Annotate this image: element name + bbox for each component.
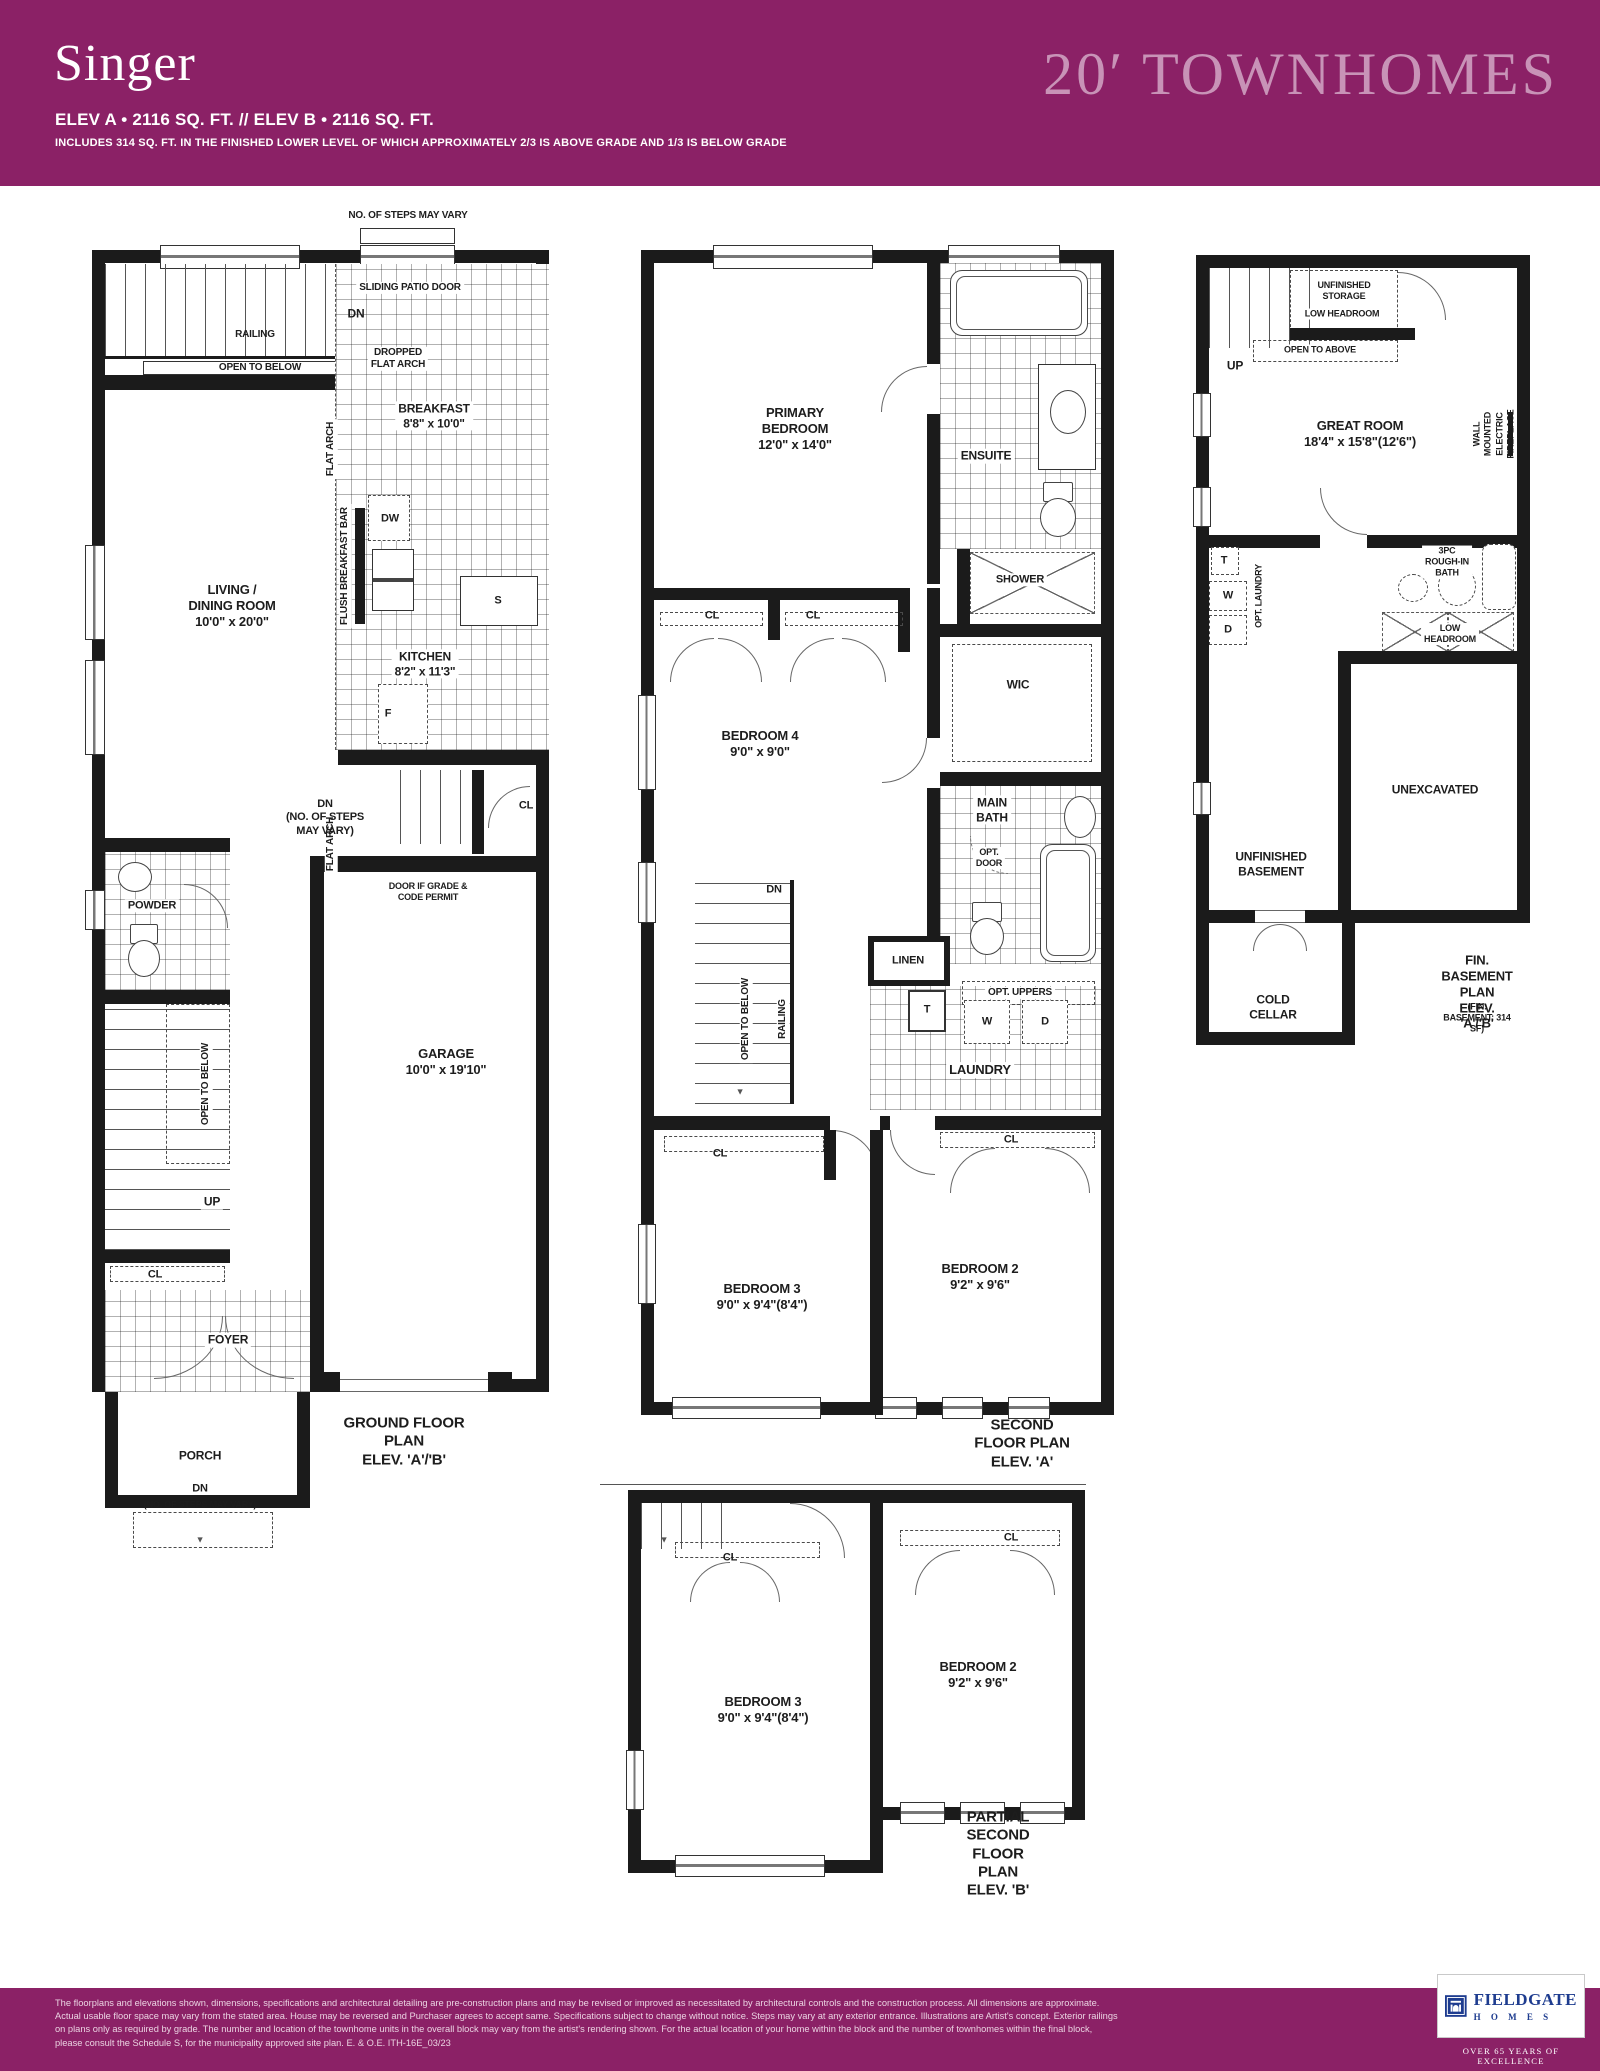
- window: [900, 1802, 945, 1824]
- wall: [768, 588, 780, 640]
- label-railing: RAILING: [235, 329, 275, 341]
- label-fridge: F: [382, 707, 395, 720]
- wall: [880, 1116, 890, 1130]
- disclaimer-text: The floorplans and elevations shown, dim…: [55, 1997, 1118, 2050]
- page-title: Singer: [54, 34, 196, 93]
- label-opt-uppers: OPT. UPPERS: [985, 987, 1055, 999]
- logo-tagline: OVER 65 YEARS OF EXCELLENCE: [1437, 2046, 1585, 2066]
- label-kitchen: KITCHEN 8'2" x 11'3": [392, 649, 459, 678]
- bathtub-fixture: [1040, 844, 1096, 962]
- label-primary-bedroom: PRIMARY BEDROOM 12'0" x 14'0": [758, 405, 832, 453]
- label-open-to-below-stair: OPEN TO BELOW: [200, 1040, 213, 1128]
- window: [638, 862, 656, 923]
- label-unexcavated: UNEXCAVATED: [1392, 783, 1478, 798]
- wall: [105, 838, 230, 852]
- wall: [927, 263, 940, 364]
- logo-homes-text: H O M E S: [1474, 2012, 1577, 2022]
- label-breakfast: BREAKFAST 8'8" x 10'0": [395, 401, 473, 430]
- wall: [472, 770, 484, 854]
- wall: [1338, 651, 1351, 923]
- wall: [1338, 651, 1530, 664]
- label-cl-left: CL: [723, 1551, 737, 1564]
- label-up: UP: [201, 1195, 223, 1210]
- wall: [957, 549, 970, 624]
- stairs: [400, 770, 478, 844]
- label-dn-mid: DN (NO. OF STEPS MAY VARY): [286, 798, 364, 838]
- label-living-dining: LIVING / DINING ROOM 10'0" x 20'0": [188, 582, 275, 630]
- ground-floor-plan: NO. OF STEPS MAY VARY SLIDING PATIO DOOR…: [88, 244, 564, 1584]
- closet-outline: [900, 1530, 1060, 1546]
- label-bedroom2: BEDROOM 2 9'2" x 9'6": [942, 1261, 1019, 1293]
- closet-outline: [664, 1136, 824, 1152]
- label-d: D: [1224, 623, 1232, 636]
- label-laundry: LAUNDRY: [946, 1062, 1014, 1078]
- basement-plan-caption-note: (FIN. BASEMENT: 314 SF): [1443, 1002, 1511, 1035]
- label-cl-bottom-left: CL: [713, 1147, 727, 1160]
- sink-fixture: [1050, 390, 1086, 434]
- wall: [488, 1372, 512, 1392]
- label-cl-left: CL: [705, 609, 719, 622]
- label-great-room: GREAT ROOM 18'4" x 15'8"(12'6"): [1304, 418, 1416, 450]
- label-cold-cellar: COLD CELLAR: [1249, 992, 1296, 1021]
- label-sink: S: [494, 594, 501, 607]
- window: [626, 1750, 644, 1810]
- label-bedroom3: BEDROOM 3 9'0" x 9'4"(8'4"): [718, 1694, 809, 1726]
- label-sliding-patio-door: SLIDING PATIO DOOR: [356, 282, 464, 294]
- label-t: T: [924, 1003, 931, 1016]
- wall: [105, 1250, 230, 1263]
- second-plan-caption: SECOND FLOOR PLAN ELEV. 'A': [973, 1417, 1071, 1472]
- label-main-bath: MAIN BATH: [973, 795, 1011, 824]
- tub-rough-in: [1482, 544, 1516, 610]
- railing-line: [790, 880, 794, 1104]
- closet-outline: [110, 1266, 225, 1282]
- wall: [654, 1116, 830, 1130]
- series-brand: 20′ TOWNHOMES: [1043, 40, 1558, 109]
- wall: [870, 1503, 883, 1860]
- window: [85, 660, 105, 755]
- label-opt-door: OPT. DOOR: [973, 847, 1005, 869]
- wall: [1290, 328, 1415, 340]
- label-door-if-grade: DOOR IF GRADE & CODE PERMIT: [389, 881, 468, 903]
- label-t: T: [1221, 554, 1228, 567]
- label-railing: RAILING: [777, 996, 790, 1042]
- wall: [940, 624, 1101, 637]
- open-to-below-outline: [166, 1004, 230, 1164]
- wall: [338, 750, 549, 765]
- window: [1193, 487, 1211, 527]
- partial-plan-caption: PARTIAL SECOND FLOOR PLAN ELEV. 'B': [952, 1808, 1044, 1899]
- window: [675, 1855, 825, 1877]
- label-dn: DN: [766, 883, 782, 896]
- label-open-to-below: OPEN TO BELOW: [219, 362, 301, 374]
- wall: [870, 1130, 883, 1415]
- section-line: [600, 1484, 1086, 1485]
- stairs-arrow-icon: ▼: [736, 1087, 745, 1098]
- wall: [310, 856, 324, 1392]
- fieldgate-logo: FIELDGATE H O M E S: [1437, 1974, 1585, 2038]
- garage-door-opening: [328, 1379, 498, 1392]
- basement-plan: UP UNFINISHED STORAGE LOW HEADROOM OPEN …: [1195, 244, 1545, 1074]
- label-dw: DW: [378, 512, 402, 525]
- label-linen: LINEN: [889, 954, 927, 967]
- railing-line: [105, 356, 373, 359]
- label-dn-bottom: DN: [192, 1482, 208, 1495]
- label-dn-top: DN: [348, 307, 365, 322]
- fieldgate-logo-icon: [1445, 1983, 1467, 2029]
- closet-outline: [785, 612, 903, 626]
- window: [672, 1397, 821, 1419]
- label-cl-lower: CL: [148, 1268, 162, 1281]
- label-ensuite: ENSUITE: [958, 449, 1015, 464]
- label-foyer: FOYER: [205, 1333, 251, 1348]
- label-dropped-flat-arch: DROPPED FLAT ARCH: [368, 347, 428, 371]
- second-floor-plan: PRIMARY BEDROOM 12'0" x 14'0" ENSUITE SH…: [640, 244, 1120, 1524]
- wic-outline: [952, 644, 1092, 762]
- label-wic: WIC: [1007, 678, 1030, 693]
- window: [85, 545, 105, 640]
- deck-landing: [360, 228, 455, 244]
- window: [1193, 782, 1211, 815]
- toilet-fixture: [126, 924, 160, 976]
- stairs-arrow-icon: ▼: [660, 1535, 669, 1546]
- label-d: D: [1038, 1015, 1052, 1028]
- label-w: W: [1223, 589, 1233, 602]
- grade-note: INCLUDES 314 SQ. FT. IN THE FINISHED LOW…: [55, 137, 787, 149]
- wall: [935, 1116, 1101, 1130]
- toilet-fixture: [968, 902, 1004, 954]
- label-garage: GARAGE 10'0" x 19'10": [406, 1046, 487, 1078]
- sink-fixture: [118, 862, 152, 892]
- wall: [654, 588, 910, 600]
- header-band: Singer ELEV A • 2116 SQ. FT. // ELEV B •…: [0, 0, 1600, 186]
- label-low-headroom: LOW HEADROOM: [1421, 623, 1479, 645]
- label-porch: PORCH: [179, 1449, 221, 1464]
- label-cl-mid: CL: [519, 799, 533, 812]
- label-unfinished-storage: UNFINISHED STORAGE: [1314, 280, 1373, 302]
- wall: [310, 856, 549, 872]
- label-bedroom4: BEDROOM 4 9'0" x 9'0": [722, 728, 799, 760]
- island-cabinet: [372, 549, 414, 611]
- label-up: UP: [1227, 359, 1243, 374]
- label-w: W: [979, 1015, 995, 1028]
- label-shower: SHOWER: [993, 573, 1047, 586]
- label-fireplace: WALL MOUNTED ELECTRIC FIREPLACE: [1472, 409, 1517, 460]
- label-opt-laundry: OPT. LAUNDRY: [1253, 564, 1264, 628]
- bathtub-fixture: [950, 270, 1088, 336]
- label-cl-right: CL: [1004, 1531, 1018, 1544]
- label-bedroom3: BEDROOM 3 9'0" x 9'4"(8'4"): [717, 1281, 808, 1313]
- wall: [940, 772, 1101, 786]
- window: [1193, 393, 1211, 437]
- label-open-to-above: OPEN TO ABOVE: [1281, 345, 1359, 356]
- label-open-to-below: OPEN TO BELOW: [740, 975, 753, 1063]
- floor-opening: [641, 1807, 870, 1823]
- toilet-fixture: [1038, 482, 1076, 536]
- partial-second-floor-plan: ▼ CL CL BEDROOM 3 9'0" x 9'4"(8'4") BEDR…: [600, 1470, 1090, 1920]
- label-unfinished-basement: UNFINISHED BASEMENT: [1235, 849, 1306, 878]
- steps-arrow-icon: ▼: [196, 1535, 205, 1546]
- sink-fixture: [1064, 796, 1096, 838]
- ground-plan-caption: GROUND FLOOR PLAN ELEV. 'A'/'B': [324, 1415, 484, 1470]
- wall: [824, 1130, 836, 1180]
- label-low-headroom-storage: LOW HEADROOM: [1302, 309, 1383, 320]
- label-powder: POWDER: [125, 899, 179, 912]
- wall: [105, 990, 230, 1004]
- stairs: [105, 264, 373, 356]
- label-cl-right: CL: [806, 609, 820, 622]
- window: [638, 695, 656, 790]
- window: [638, 1224, 656, 1304]
- wall: [927, 414, 940, 584]
- wall: [927, 588, 940, 738]
- window: [85, 890, 105, 930]
- label-flush-breakfast-bar: FLUSH BREAKFAST BAR: [339, 504, 352, 628]
- wall: [355, 508, 365, 624]
- window: [713, 245, 873, 269]
- door-opening: [1255, 910, 1305, 923]
- logo-wordmark: FIELDGATE: [1474, 1991, 1577, 2008]
- label-rough-in-bath: 3PC ROUGH-IN BATH: [1422, 546, 1472, 579]
- brochure-page: Singer ELEV A • 2116 SQ. FT. // ELEV B •…: [0, 0, 1600, 2071]
- label-dn-bottom-note: (NO. OF STEPS MAY VARY): [144, 1500, 256, 1511]
- label-flat-arch-upper: FLAT ARCH: [325, 419, 338, 479]
- label-cl-bottom-right: CL: [1001, 1133, 1021, 1146]
- label-bedroom2: BEDROOM 2 9'2" x 9'6": [940, 1659, 1017, 1691]
- label-no-steps: NO. OF STEPS MAY VARY: [348, 210, 467, 222]
- elevation-spec: ELEV A • 2116 SQ. FT. // ELEV B • 2116 S…: [55, 110, 434, 130]
